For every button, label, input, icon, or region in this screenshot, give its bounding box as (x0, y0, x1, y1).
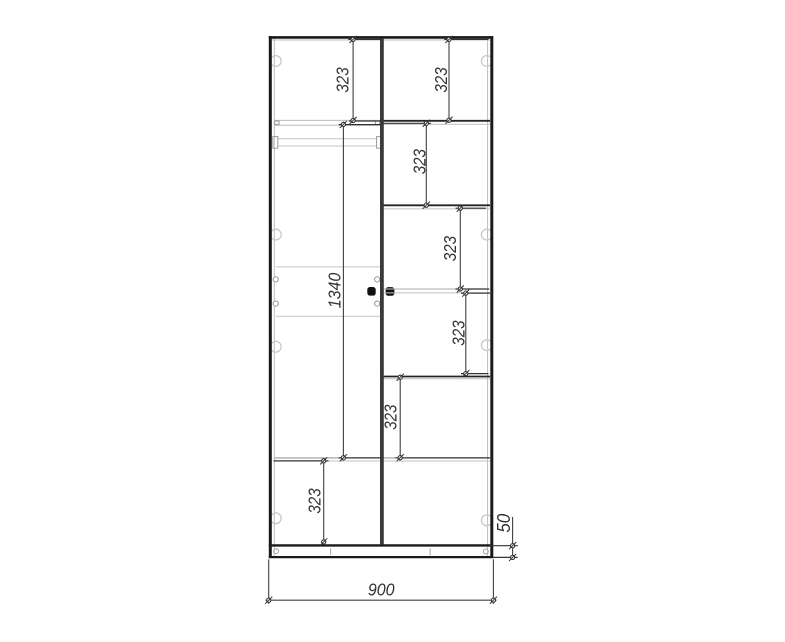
svg-text:50: 50 (493, 514, 514, 533)
svg-text:323: 323 (380, 404, 401, 430)
svg-text:323: 323 (409, 148, 430, 174)
svg-text:323: 323 (304, 488, 325, 514)
svg-text:323: 323 (431, 67, 452, 93)
svg-text:323: 323 (448, 320, 469, 346)
svg-text:323: 323 (440, 235, 461, 261)
svg-text:1340: 1340 (325, 272, 345, 308)
svg-text:323: 323 (332, 67, 353, 93)
svg-text:900: 900 (368, 579, 395, 599)
